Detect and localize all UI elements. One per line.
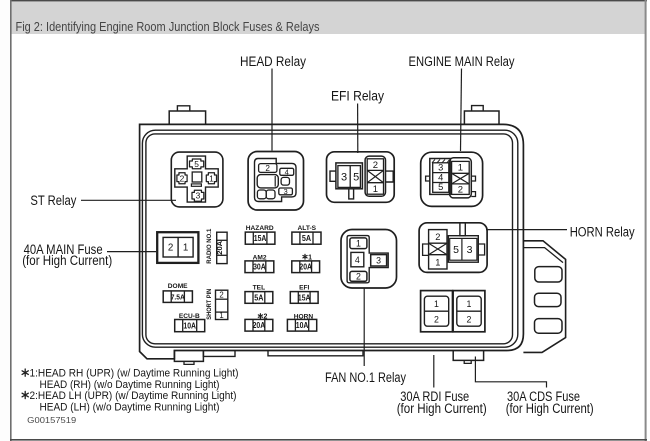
svg-text:7.5A: 7.5A [171, 293, 185, 302]
svg-text:EFI: EFI [299, 284, 309, 291]
svg-text:4: 4 [285, 167, 289, 176]
svg-text:HAZARD: HAZARD [246, 225, 274, 232]
svg-text:RADIO NO.1: RADIO NO.1 [206, 228, 213, 263]
svg-text:10A: 10A [183, 322, 196, 331]
svg-text:2: 2 [219, 291, 223, 300]
svg-text:2: 2 [168, 243, 173, 254]
svg-text:3: 3 [438, 162, 443, 172]
svg-text:5A: 5A [302, 234, 312, 243]
svg-text:30A: 30A [253, 263, 266, 272]
svg-text:2: 2 [435, 232, 440, 242]
svg-text:1: 1 [434, 299, 439, 309]
svg-text:HEAD (LH) (w/o Daytime Running: HEAD (LH) (w/o Daytime Running Light) [40, 401, 220, 413]
svg-text:5: 5 [353, 171, 359, 183]
svg-text:4: 4 [355, 255, 360, 265]
svg-text:5: 5 [453, 244, 459, 256]
svg-text:3: 3 [376, 256, 381, 266]
svg-text:EFI Relay: EFI Relay [331, 89, 385, 105]
svg-text:ST Relay: ST Relay [30, 193, 77, 209]
svg-text:5: 5 [438, 182, 443, 192]
svg-text:3: 3 [196, 191, 201, 201]
svg-text:TEL: TEL [253, 284, 265, 291]
svg-text:FAN NO.1 Relay: FAN NO.1 Relay [325, 370, 407, 386]
svg-text:G00157519: G00157519 [27, 415, 76, 425]
svg-text:ENGINE MAIN Relay: ENGINE MAIN Relay [409, 54, 516, 70]
svg-text:ALT-S: ALT-S [298, 225, 317, 232]
svg-text:Fig 2: Identifying Engine Room: Fig 2: Identifying Engine Room Junction … [16, 19, 320, 34]
svg-text:20A: 20A [253, 321, 266, 330]
svg-text:2: 2 [356, 271, 361, 281]
svg-text:DOME: DOME [168, 283, 188, 290]
svg-text:10A: 10A [296, 321, 309, 330]
svg-text:5A: 5A [254, 293, 264, 302]
svg-text:5: 5 [194, 159, 199, 169]
svg-text:2: 2 [434, 314, 439, 324]
svg-text:(for High Current): (for High Current) [397, 401, 487, 417]
svg-text:2: 2 [180, 173, 185, 183]
svg-text:3: 3 [341, 171, 347, 183]
svg-text:3: 3 [283, 187, 287, 196]
svg-text:1: 1 [219, 311, 223, 320]
svg-text:1: 1 [183, 243, 188, 254]
svg-text:15A: 15A [298, 293, 311, 302]
svg-text:20A: 20A [215, 240, 224, 254]
svg-text:2: 2 [458, 184, 463, 195]
svg-text:1:HEAD RH (UPR) (w/ Daytime Ru: 1:HEAD RH (UPR) (w/ Daytime Running Ligh… [30, 368, 239, 380]
svg-text:2: 2 [265, 164, 270, 173]
svg-text:SHORT PIN: SHORT PIN [206, 288, 213, 319]
svg-text:1: 1 [467, 299, 472, 309]
svg-text:(for High Current): (for High Current) [22, 253, 112, 269]
svg-text:2:HEAD LH (UPR) (w/ Daytime Ru: 2:HEAD LH (UPR) (w/ Daytime Running Ligh… [30, 390, 237, 402]
svg-text:15A: 15A [254, 234, 267, 243]
svg-text:1: 1 [458, 163, 463, 174]
svg-text:2: 2 [373, 160, 378, 171]
svg-text:20A: 20A [299, 263, 312, 272]
svg-text:(for High Current): (for High Current) [506, 401, 594, 417]
svg-text:1: 1 [435, 258, 440, 268]
svg-text:1: 1 [356, 239, 361, 249]
svg-text:HORN Relay: HORN Relay [570, 225, 636, 241]
svg-text:HEAD Relay: HEAD Relay [240, 54, 307, 70]
svg-text:1: 1 [373, 184, 378, 195]
svg-text:2: 2 [467, 314, 472, 324]
svg-text:1: 1 [209, 173, 214, 183]
svg-text:3: 3 [467, 244, 473, 256]
svg-text:4: 4 [438, 172, 443, 182]
